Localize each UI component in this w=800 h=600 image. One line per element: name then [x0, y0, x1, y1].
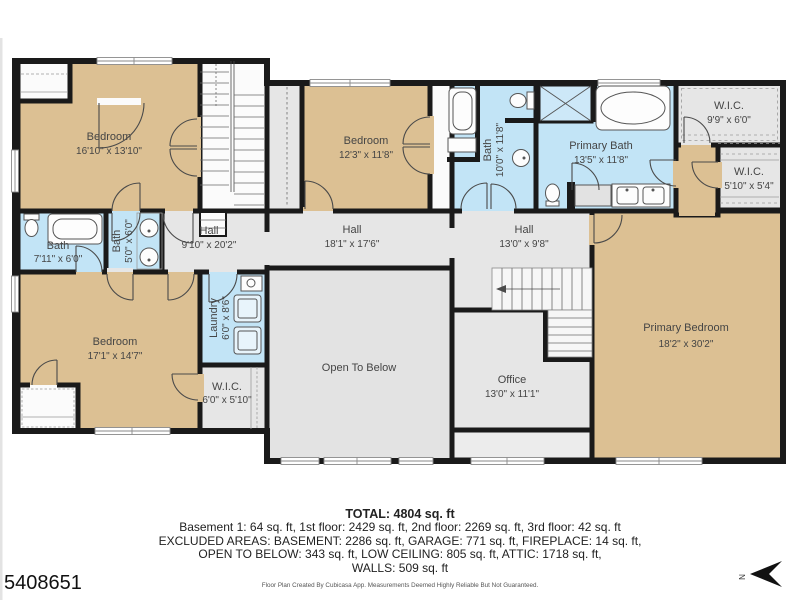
label-bath-small: Bath	[111, 230, 123, 253]
double-vanity-icon	[612, 184, 670, 207]
svg-text:6'0" x 5'10": 6'0" x 5'10"	[202, 395, 252, 406]
bathtub-icon	[596, 86, 670, 130]
svg-text:7'11" x 6'0": 7'11" x 6'0"	[34, 254, 83, 265]
label-hall-middle: Hall	[343, 224, 362, 236]
disclaimer-text: Floor Plan Created By Cubicasa App. Meas…	[0, 582, 800, 589]
svg-text:5'0" x 6'0": 5'0" x 6'0"	[124, 219, 135, 263]
svg-text:13'0" x 11'1": 13'0" x 11'1"	[485, 389, 540, 400]
label-office: Office	[498, 374, 527, 386]
label-wic-bottom-left: W.I.C.	[212, 381, 242, 393]
label-bath-middle: Bath	[482, 139, 494, 162]
svg-text:6'0" x 8'6": 6'0" x 8'6"	[221, 296, 232, 340]
svg-text:9'10" x 20'2": 9'10" x 20'2"	[182, 240, 237, 251]
walls-area: WALLS: 509 sq. ft	[0, 562, 800, 576]
svg-text:13'5" x 11'8": 13'5" x 11'8"	[574, 155, 629, 166]
svg-text:18'1" x 17'6": 18'1" x 17'6"	[325, 239, 380, 250]
label-hall-right: Hall	[515, 224, 534, 236]
label-bedroom-bottom-left: Bedroom	[93, 336, 138, 348]
room-wic-top-right	[676, 83, 783, 145]
svg-text:12'3" x 11'8": 12'3" x 11'8"	[339, 150, 394, 161]
floor-plan-page: Bedroom 16'10" x 13'10" Bedroom 12'3" x …	[0, 0, 800, 600]
svg-text:5'10" x 5'4": 5'10" x 5'4"	[724, 181, 774, 192]
excluded-areas-line2: OPEN TO BELOW: 343 sq. ft, LOW CEILING: …	[0, 548, 800, 562]
label-bedroom-middle: Bedroom	[344, 135, 389, 147]
sink-icon	[513, 150, 530, 167]
label-laundry: Laundry	[208, 298, 220, 338]
dryer-icon	[234, 327, 261, 354]
label-wic-top-right: W.I.C.	[714, 100, 744, 112]
stair-landing-strip	[267, 83, 302, 211]
svg-text:16'10" x 13'10": 16'10" x 13'10"	[76, 146, 142, 157]
svg-text:17'1" x 14'7": 17'1" x 14'7"	[88, 351, 143, 362]
shower-icon	[539, 85, 592, 122]
closet-top-left	[18, 61, 70, 101]
laundry-sink-icon	[241, 276, 262, 291]
toilet-icon	[510, 92, 534, 109]
svg-text:13'0" x 9'8": 13'0" x 9'8"	[499, 239, 549, 250]
label-open-to-below: Open To Below	[322, 362, 396, 374]
counter	[448, 138, 476, 152]
bathtub-icon	[449, 88, 476, 134]
listing-id: 5408651	[4, 572, 82, 595]
washer-icon	[234, 295, 261, 322]
label-primary-bedroom: Primary Bedroom	[643, 322, 729, 334]
label-hall-left: Hall	[200, 225, 219, 237]
svg-text:18'2" x 30'2": 18'2" x 30'2"	[659, 339, 714, 350]
label-bath-left: Bath	[47, 240, 70, 252]
svg-text:10'0" x 11'8": 10'0" x 11'8"	[495, 123, 506, 178]
counter	[575, 185, 611, 206]
svg-text:9'9" x 6'0": 9'9" x 6'0"	[707, 115, 751, 126]
floor-areas: Basement 1: 64 sq. ft, 1st floor: 2429 s…	[0, 521, 800, 535]
staircase-left-area	[200, 61, 267, 211]
room-primary-bedroom	[592, 211, 783, 460]
label-wic-right: W.I.C.	[734, 166, 764, 178]
primary-corridor	[676, 145, 718, 215]
closet-bottom-left	[18, 385, 78, 431]
label-bedroom-top-left: Bedroom	[87, 131, 132, 143]
toilet-icon	[546, 184, 560, 206]
toilet-icon	[24, 214, 39, 237]
label-primary-bath: Primary Bath	[569, 140, 633, 152]
area-summary: TOTAL: 4804 sq. ft Basement 1: 64 sq. ft…	[0, 508, 800, 589]
excluded-areas-line1: EXCLUDED AREAS: BASEMENT: 2286 sq. ft, G…	[0, 535, 800, 549]
room-porch-strip	[452, 430, 592, 460]
